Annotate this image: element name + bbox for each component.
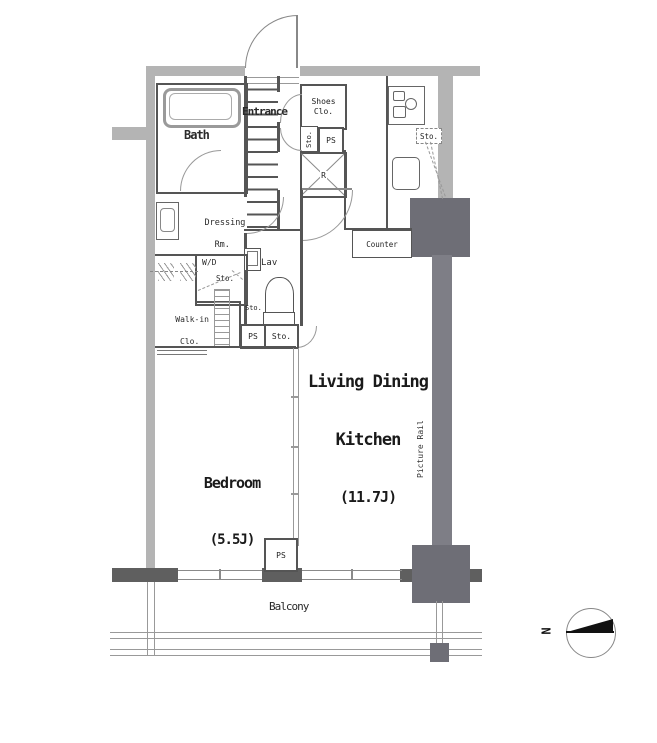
closet-hanger-rail <box>214 289 230 347</box>
entrance-door-arc <box>245 15 298 68</box>
partition-tick <box>291 493 299 495</box>
hatch-mark <box>180 263 196 281</box>
top-wall-left <box>147 66 245 76</box>
balcony-railing-upper <box>110 632 482 639</box>
hallway-wall <box>277 122 280 152</box>
vanity-sink-inner <box>160 208 175 232</box>
bath-label: Bath <box>184 128 209 142</box>
dressing-line1: Dressing <box>204 218 245 228</box>
ldk-size: (11.7J) <box>302 488 434 507</box>
bedroom-label: Bedroom (5.5J) <box>175 436 289 587</box>
dressing-room-label: Dressing Rm. <box>184 207 240 262</box>
stove-burner <box>405 98 417 110</box>
dressing-line2: Rm. <box>215 240 230 250</box>
north-label: N <box>539 627 553 634</box>
walkin-closet-wall <box>239 302 241 347</box>
shoes-closet-label2: Clo. <box>314 107 333 116</box>
counter-label: Counter <box>366 240 398 249</box>
balcony-railing-lower <box>110 649 482 656</box>
washer-dryer-label: W/D <box>202 258 216 267</box>
top-wall-right <box>300 66 480 76</box>
bottom-wall-segment-1 <box>112 568 178 582</box>
storage-label: Sto. <box>305 131 313 148</box>
pillar-bottom <box>412 545 470 603</box>
shoes-closet-label: Shoes <box>311 97 335 106</box>
toilet-icon <box>265 277 294 317</box>
compass-circle <box>566 608 616 658</box>
hatch-centerline <box>150 271 198 272</box>
left-wall-stub <box>112 127 146 140</box>
hatch-mark <box>158 263 174 281</box>
ldk-label: Living Dining Kitchen (11.7J) <box>302 334 434 545</box>
ldk-line1: Living Dining <box>302 372 434 392</box>
stove-burner <box>393 106 406 118</box>
balcony-label: Balcony <box>269 600 308 613</box>
kitchen-sink-icon <box>392 157 420 190</box>
ldk-line2: Kitchen <box>302 430 434 450</box>
window-mullion <box>351 569 353 580</box>
stove-burner <box>393 91 405 101</box>
refrigerator-label: R <box>320 171 327 180</box>
pipe-shaft-label: PS <box>248 332 258 341</box>
stove-icon <box>388 86 425 125</box>
balcony-post <box>430 643 449 662</box>
walkin-line1: Walk-in <box>175 315 209 324</box>
lavatory-storage-label: Sto. <box>245 304 262 312</box>
storage-door-arc <box>280 128 302 151</box>
shoes-closet: Shoes Clo. <box>300 84 347 130</box>
kitchen-storage-label: Sto. <box>420 132 438 141</box>
picture-rail-label: Picture Rail <box>416 368 425 478</box>
balcony-side-wall <box>147 582 155 656</box>
pipe-shaft-entry: PS <box>318 127 344 154</box>
right-wall-main <box>432 255 452 547</box>
bedroom-name: Bedroom <box>175 474 289 493</box>
partition-tick <box>291 396 299 398</box>
bedroom-size: (5.5J) <box>175 531 289 549</box>
ldk-door-leaf <box>302 188 352 190</box>
walkin-line2: Clo. <box>180 337 199 346</box>
pillar-top <box>410 198 470 257</box>
walkin-closet-label: Walk-in Clo. <box>156 303 204 358</box>
ldk-door-arc <box>302 190 353 241</box>
lavatory-label: Lav <box>261 258 277 268</box>
storage-label: Sto. <box>272 332 291 341</box>
storage-box-vertical: Sto. <box>300 126 318 152</box>
floor-plan: Shoes Clo. Sto. PS R Sto. Counter PS <box>0 0 657 743</box>
compass-needle-wedge <box>567 619 613 632</box>
lavatory-wall <box>300 190 303 326</box>
balcony-divider-line <box>436 601 443 645</box>
entrance-label: Entrance <box>242 105 287 118</box>
lavatory-cabinet-inner <box>247 251 258 266</box>
entrance-door-leaf <box>296 15 298 68</box>
washer-storage-label: Sto. <box>216 274 234 283</box>
partition-tick <box>291 446 299 448</box>
pipe-shaft-label: PS <box>326 136 336 145</box>
bottom-wall-stub-right <box>470 569 482 582</box>
bathtub-inner <box>169 93 232 120</box>
hallway-wall <box>277 76 280 92</box>
left-wall <box>146 66 155 582</box>
counter: Counter <box>352 230 412 258</box>
